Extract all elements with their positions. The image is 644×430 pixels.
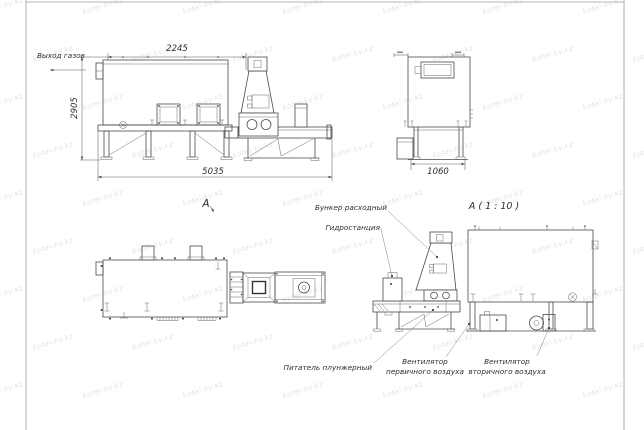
machine-body xyxy=(96,60,228,125)
view-direction-arrow xyxy=(210,206,214,212)
dim-2245-value: 2245 xyxy=(166,44,188,54)
dim-1060-value: 1060 xyxy=(427,167,449,177)
furnace-chimney xyxy=(239,57,278,136)
dim-1060: 1060 xyxy=(411,160,465,177)
svg-text:Вентилятор: Вентилятор xyxy=(484,357,530,366)
detail-view: А ( 1 : 10 ) xyxy=(284,201,598,376)
feeder-label: Питатель плунжерный xyxy=(284,363,373,372)
hopper-plan xyxy=(243,273,275,302)
dim-5035: 5035 xyxy=(98,131,332,181)
view-arrow-label: А xyxy=(201,198,209,210)
support-frame xyxy=(98,120,232,160)
fan-secondary-label: Вентилятор вторичного воздуха xyxy=(468,357,545,376)
gas-outlet-label: Выход газов xyxy=(37,51,85,60)
hydrostation-label: Гидростанция xyxy=(325,223,380,232)
detail-hopper-chimney xyxy=(416,232,457,301)
plan-body xyxy=(96,246,227,321)
svg-text:Вентилятор: Вентилятор xyxy=(402,357,448,366)
top-hatch xyxy=(415,62,454,78)
side-elevation-view: Выход газов 2245 2905 xyxy=(37,44,332,181)
end-body xyxy=(408,57,470,127)
gas-outlet-callout: Выход газов xyxy=(37,51,86,70)
drawing-sheet: kotel-kv.kzkotel-kv.kzkotel-kv.kzkotel-k… xyxy=(0,0,644,430)
detail-title: А ( 1 : 10 ) xyxy=(468,201,519,212)
ribbed-connector-plan xyxy=(230,272,243,303)
feeder-plan xyxy=(275,272,325,303)
feeder-truss xyxy=(396,312,456,331)
detail-feeder-trough xyxy=(373,301,460,331)
fan-primary xyxy=(480,312,506,332)
access-panels xyxy=(157,104,220,125)
dim-2905: 2905 xyxy=(70,57,108,160)
hopper-label: Бункер расходный xyxy=(315,203,387,212)
fan-secondary xyxy=(530,315,556,332)
dim-2245: 2245 xyxy=(108,44,246,70)
dim-2905-value: 2905 xyxy=(70,97,80,119)
dim-5035-value: 5035 xyxy=(202,167,224,177)
end-elevation-view: 1060 xyxy=(394,52,473,178)
fan-primary-label: Вентилятор первичного воздуха xyxy=(386,357,464,376)
svg-text:первичного воздуха: первичного воздуха xyxy=(386,367,464,376)
side-ticks xyxy=(470,110,473,118)
conveyor-truss xyxy=(244,138,319,161)
drawing-canvas: Выход газов 2245 2905 xyxy=(0,0,644,430)
end-side-box xyxy=(397,138,413,159)
detail-main-body xyxy=(468,225,598,302)
svg-text:вторичного воздуха: вторичного воздуха xyxy=(468,367,545,376)
micro-dims xyxy=(394,52,464,58)
plan-view: А xyxy=(96,198,325,321)
